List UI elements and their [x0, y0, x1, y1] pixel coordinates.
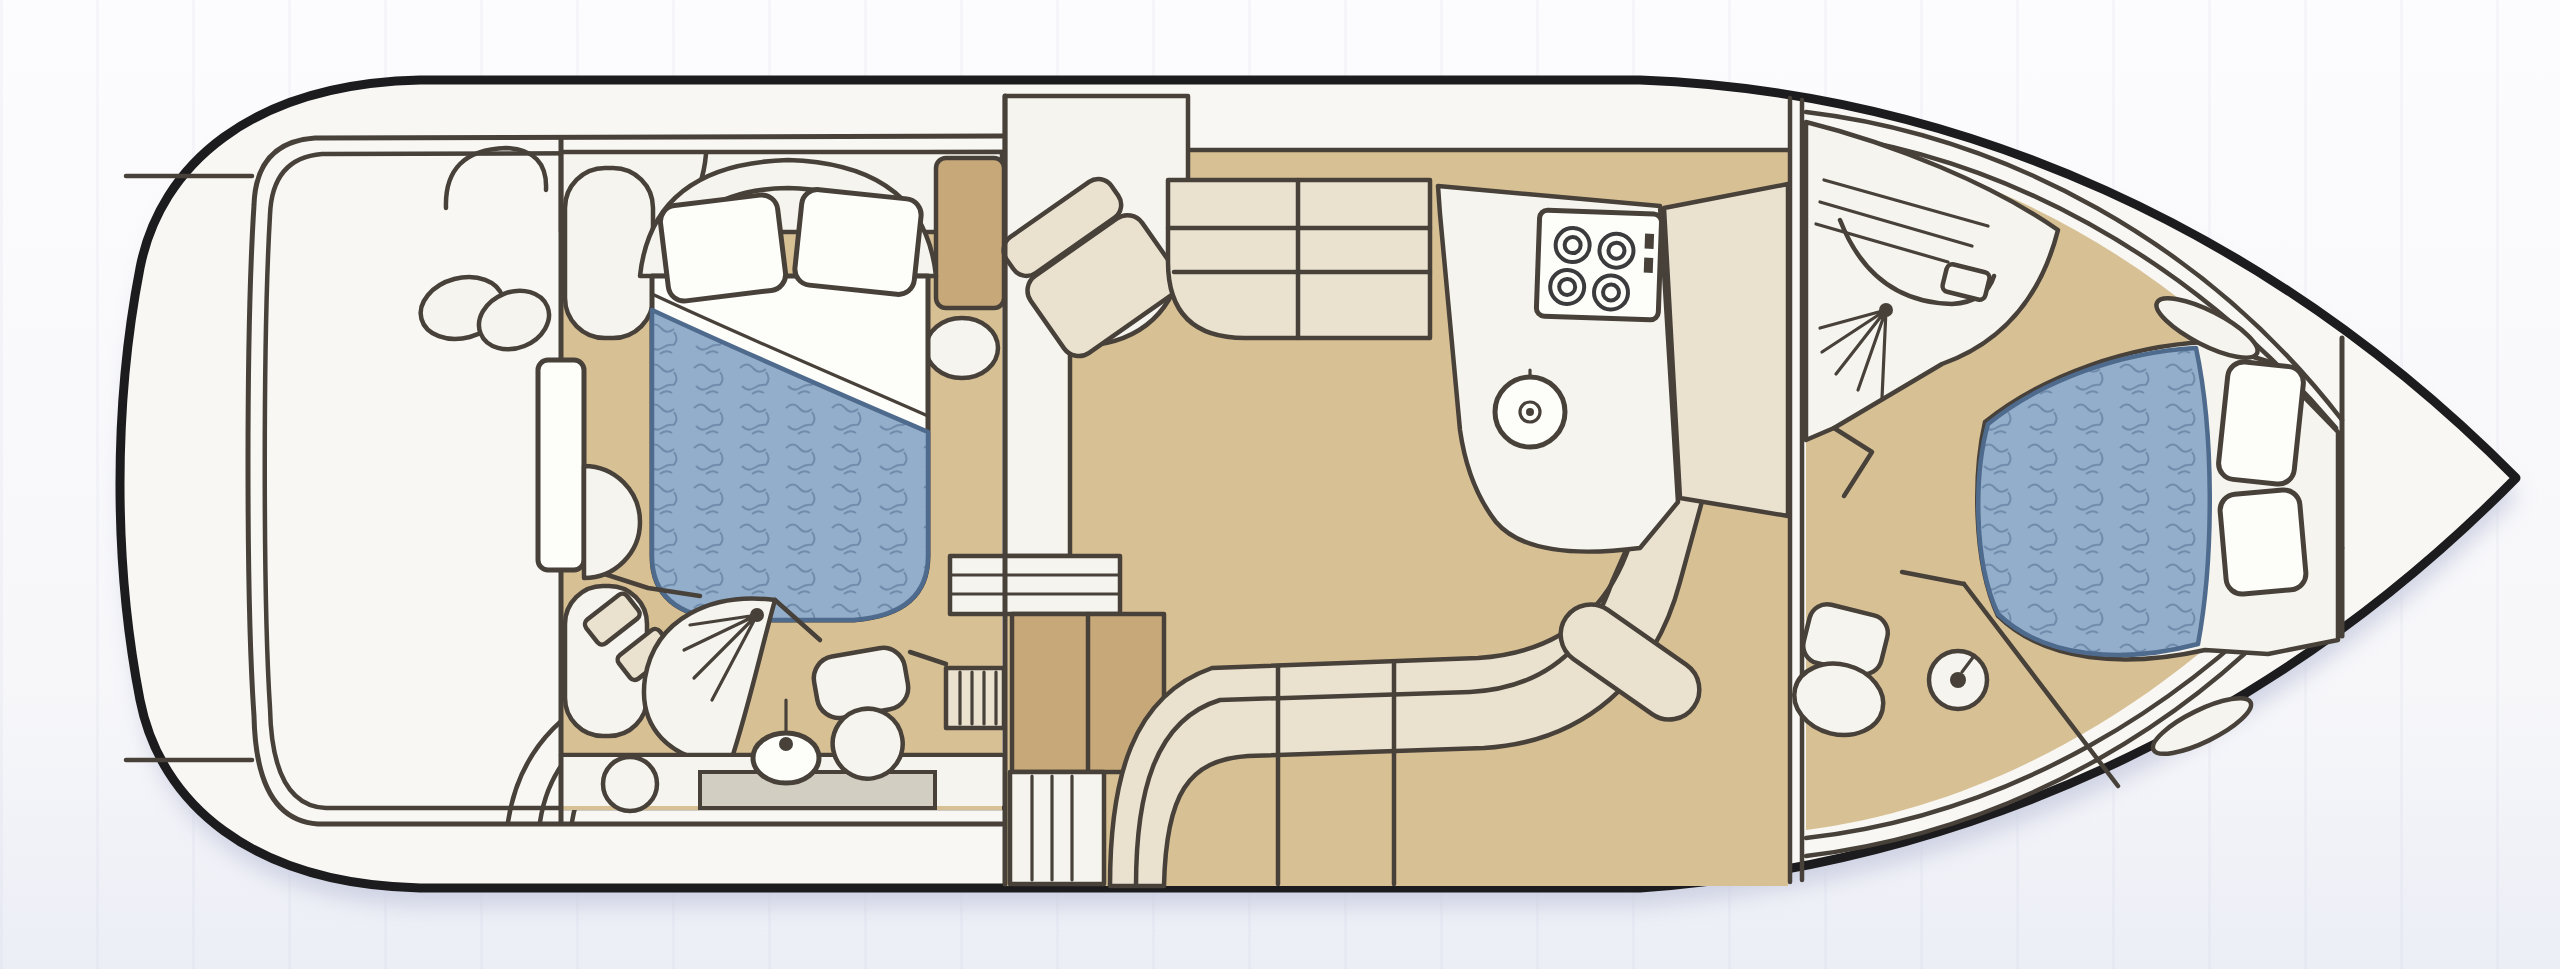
bath-step-platform — [700, 772, 935, 808]
yacht-floor-plan — [0, 0, 2560, 969]
stove-knob-1 — [1645, 234, 1655, 249]
aft-cabin-door — [538, 360, 584, 570]
companionway-treads — [950, 556, 1120, 614]
sink-icon-forward — [1929, 651, 1987, 709]
aft-cabin — [538, 138, 1004, 822]
steps-hatch — [946, 668, 1004, 728]
bed-forward — [1977, 342, 2338, 659]
forward-section — [1784, 112, 2342, 856]
pillow-forward-lower — [2219, 489, 2307, 596]
dressing-table — [936, 158, 1004, 308]
stove-knob-2 — [1644, 258, 1654, 273]
yacht-floor-plan-page — [0, 0, 2560, 969]
pillow-forward-upper — [2217, 360, 2305, 485]
stove-icon — [1536, 210, 1662, 320]
lower-steps — [1010, 772, 1104, 884]
basin-round-aft — [603, 757, 657, 811]
galley-counter-slab — [1664, 184, 1788, 516]
pillow-aft-left — [659, 193, 788, 303]
wall-locker-upper — [565, 168, 653, 338]
dressing-stool — [926, 318, 998, 378]
pillow-aft-right — [793, 188, 922, 296]
sofa — [1168, 180, 1430, 338]
